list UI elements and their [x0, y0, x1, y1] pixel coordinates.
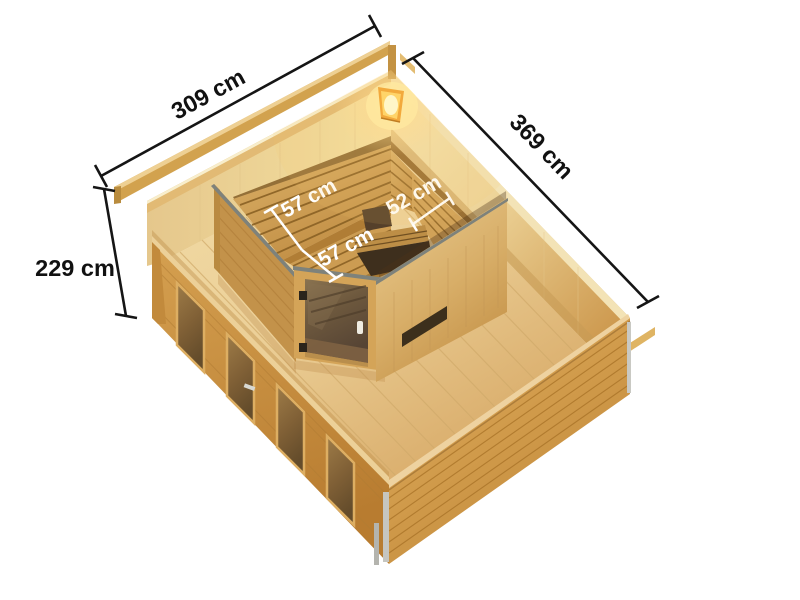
- svg-text:229 cm: 229 cm: [35, 255, 115, 281]
